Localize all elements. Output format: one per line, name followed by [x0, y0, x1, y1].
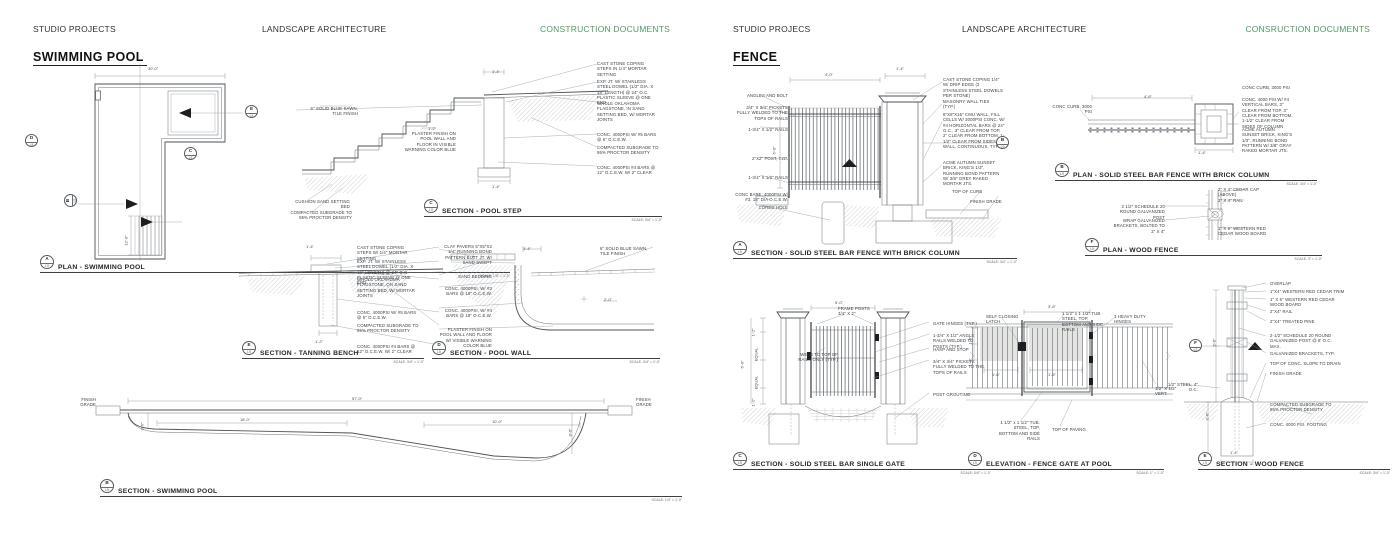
gate-hinge: [875, 334, 879, 341]
callout-label: 1" X 6" WESTERN RED CEDAR WOOD BOARD: [1270, 297, 1340, 308]
section-marker-f: FL9: [1189, 339, 1202, 352]
callout-label: CONC CURB, 3000 PSI: [1050, 104, 1092, 115]
drawing-title-text: SECTION - SOLID STEEL BAR SINGLE GATE: [751, 461, 905, 468]
callout-label: CONC. 4000PSI #4 BARS @ 12" O.C.E.W. W/ …: [597, 165, 661, 176]
footing: [1221, 402, 1253, 456]
fence-cap: [1228, 286, 1246, 290]
callout-label: 1"X4" WESTERN RED CEDAR TRIM: [1270, 289, 1358, 294]
dim-label: 1'-4": [523, 246, 531, 251]
callout-label: SELF CLOSING LATCH: [986, 314, 1022, 325]
detail-bubble: FL9: [1085, 238, 1099, 252]
callout-label: 3 HEAVY DUTY HINGES: [1114, 314, 1148, 325]
drawing-scale: SCALE: 3/4" = 1'-0": [630, 360, 661, 364]
rail: [1227, 302, 1247, 309]
detail-bubble: CL5: [424, 199, 438, 213]
dim-label: 1'-2": [750, 399, 755, 407]
drawing-title-text: ELEVATION - FENCE GATE AT POOL: [986, 461, 1112, 468]
column-cap: [879, 96, 926, 102]
marker-ref: C: [185, 148, 196, 156]
pool-outline: [95, 84, 225, 259]
sheet-ref: L9: [969, 461, 981, 466]
callout-label: CONC. 4000 PSI W/ #4 VERTICAL BARS, 3" C…: [1242, 97, 1294, 129]
callout-label: OVERLAP: [1270, 281, 1358, 286]
drawing-ref: B: [101, 480, 113, 488]
sheet-swimming-pool: STUDIO PROJECTS LANDSCAPE ARCHITECTURE C…: [0, 0, 700, 540]
callout-label: GALVANIZED BRACKETS, TYP.: [1270, 351, 1358, 356]
drawing-ref: A: [41, 256, 53, 264]
callout-label: TOP OF CURB: [952, 189, 992, 194]
callout-label: PLASTER FINISH ON POOL WALL AND FLOOR IN…: [404, 131, 456, 152]
drawing-ref: C: [425, 200, 437, 208]
callout-label: 1 1/2" x 1 1/2" TUB. STEEL, TOP, BOTTOM …: [1062, 311, 1106, 332]
marker-ref: E: [246, 106, 257, 114]
column-cap: [777, 312, 809, 318]
callout-label: 1/2" STEEL, 4" O.C.: [1166, 382, 1198, 393]
callout-label: FRAME POSTS 3/4" X 2": [838, 306, 878, 317]
callout-label: TOP OF PAVING: [1052, 427, 1086, 432]
dim-label: 2'-0": [604, 297, 612, 302]
drawing-title-text: PLAN - WOOD FENCE: [1103, 247, 1179, 254]
drawing-title-text: SECTION - SOLID STEEL BAR FENCE WITH BRI…: [751, 250, 960, 257]
drawing-scale: SCALE: 3/4" = 1'-0": [1360, 471, 1391, 475]
dim-label: 8'-0": [567, 429, 572, 437]
header-studio-projects: STUDIO PROJECS: [733, 24, 810, 34]
earth-hatch: [1186, 404, 1219, 422]
skimmer: [96, 91, 101, 100]
fence-bars: [1094, 327, 1170, 388]
header-construction-documents: CONSRUCTION DOCUMENTS: [1245, 24, 1370, 34]
section-marker-c: CL5: [184, 147, 197, 160]
callout-label: ANGLES AND BOLT: [732, 93, 788, 98]
marker-sheet: L5: [185, 156, 196, 161]
callout-label: CUSHION SAND SETTING BED: [290, 199, 350, 210]
swimming-pool-plan-drawing: [40, 64, 270, 269]
section-marker-b: BL9: [996, 136, 1009, 149]
drawing-title-steel-fence-plan: BL9 PLAN - SOLID STEEL BAR FENCE WITH BR…: [1055, 166, 1317, 181]
dim-label: 5'-6": [1211, 339, 1216, 347]
callout-label: 3/4" X 3/4" PICKETS FULLY WELDED TO THE …: [732, 105, 788, 121]
dim-label: 1'-4": [896, 66, 904, 71]
detail-bubble: BL5: [100, 479, 114, 493]
paving: [807, 408, 879, 422]
dim-label: 6'-0": [739, 361, 744, 369]
drawing-ref: F: [1086, 239, 1098, 247]
drawing-ref: A: [734, 242, 746, 250]
dim-label: 10'-0": [492, 419, 502, 424]
dim-label: 1'-4": [492, 184, 500, 189]
gate-section-drawing: [733, 296, 958, 466]
hinge: [1089, 378, 1093, 385]
dim-label: 1'-6": [992, 372, 1000, 377]
fence-pickets: [790, 108, 879, 190]
callout-label: 1 1/2" x 1 1/2" TUB. STEEL, TOP, BOTTOM …: [994, 420, 1040, 441]
callout-label: CONC. 4000 PSI. FOOTING: [1270, 422, 1358, 427]
picket-ticks: [1088, 128, 1195, 133]
detail-bubble: BL9: [1055, 163, 1069, 177]
drawing-ref: B: [1056, 164, 1068, 172]
brick-column: [886, 318, 900, 404]
dim-label: 1'-4": [1198, 150, 1206, 155]
dim-label: EQUAL: [753, 348, 758, 362]
drawing-scale: SCALE: 3/4" = 1'-0": [394, 360, 425, 364]
callout-label: WHOLE OKLAHOMA FLAGSTONE, IN SAND SETTIN…: [597, 101, 659, 122]
callout-label: COMPACTED SUBGRADE TO 95% PROCTOR DENSIT…: [597, 145, 659, 156]
steel-fence-plan-drawing: [1080, 90, 1240, 172]
sheet-ref: L5: [101, 488, 113, 493]
dim-pool-steps: 12'-0": [124, 235, 129, 245]
callout-label: CAST STONE COPING STEPS IN 1/4" MORTAR S…: [597, 61, 659, 77]
callout-label: 2-1/2" SCHEDULE 20 ROUND GALVANIZED POST…: [1270, 333, 1336, 349]
fence-bars: [970, 327, 1020, 388]
dim-label: 3'-6": [139, 423, 144, 431]
drawing-title-gate-elevation: DL9 ELEVATION - FENCE GATE AT POOL SCALE…: [968, 455, 1164, 470]
dim-label: 1'-2": [750, 329, 755, 337]
drawing-ref: D: [433, 342, 445, 350]
drawing-title-text: SECTION - TANNING BENCH: [260, 350, 359, 357]
pool-wall-footing: [484, 98, 504, 168]
callout-label: CLAY PAVERS 5"X5"X2 1/4" RUNNING BOND PA…: [436, 244, 492, 265]
callout-label: 6" SOLID BLUE SAWN, TILE FINISH: [600, 246, 658, 257]
sheet-fence: STUDIO PROJECS LANDSCAPE ARCHITECTURE CO…: [700, 0, 1400, 540]
finish-grade-right: [608, 406, 632, 415]
dim-label: 4'-6": [1144, 94, 1152, 99]
section-marker-d: DL5: [25, 134, 38, 147]
earth-hatch: [842, 205, 880, 228]
sheet-ref: L5: [425, 208, 437, 213]
callout-label: TOP OF CONC. SLOPE TO DRAIN: [1270, 361, 1358, 366]
callout-label: 6" SOLID BLUE SAWN, TILE FINISH: [300, 106, 358, 117]
callout-label: 2" X 4" CEDAR CAP (ABOVE): [1218, 187, 1274, 198]
callout-label: WHOLE OKLAHOMA FLAGSTONE, ON SAND SETTIN…: [357, 277, 419, 298]
dim-label: 1'-4": [306, 244, 314, 249]
callout-label: COMPACTED SUBGRADE TO 95% PROCTOR DENSIT…: [1270, 402, 1340, 413]
earth-hatch: [304, 174, 370, 194]
drawing-title-text: SECTION - POOL WALL: [450, 350, 531, 357]
marker-ref: B: [997, 137, 1008, 145]
sheet-ref: L9: [1086, 247, 1098, 252]
marker-sheet: L5: [246, 114, 257, 119]
drawing-ref: E: [243, 342, 255, 350]
callout-label: MASONRY WALL TIES (TYP.): [943, 99, 997, 110]
latch: [1018, 342, 1026, 351]
callout-label: ACME AUTUMN SUNSET BRICK, KING'S 1/3", R…: [1242, 127, 1294, 154]
finish-grade-label: FINISH GRADE: [72, 397, 96, 408]
marker-sheet: L5: [73, 195, 78, 206]
hinge: [1089, 356, 1093, 363]
section-arrow: [1248, 342, 1262, 350]
earth-hatch: [909, 408, 949, 428]
detail-bubble: DL5: [432, 341, 446, 355]
dim-label: 6'-0": [771, 147, 776, 155]
drawing-title-pool-step: CL5 SECTION - POOL STEP SCALE: 3/4" = 1'…: [424, 202, 662, 217]
drawing-scale: SCALE: 3" = 1'-0": [1294, 257, 1322, 261]
header-construction-documents: CONSTRUCTION DOCUMENTS: [540, 24, 670, 34]
dim-label: 18'-0": [240, 417, 250, 422]
dim-label: 1'-4": [492, 69, 500, 74]
drawing-scale: SCALE: 3/4" = 1'-0": [632, 218, 663, 222]
callout-label: WRAP GALVANIZED BRACKETS, BOLTED TO 2" X…: [1113, 218, 1165, 234]
header-landscape-architecture: LANDSCAPE ARCHITECTURE: [962, 24, 1086, 34]
drawing-ref: D: [969, 453, 981, 461]
callout-label: CONC. 4000PSI, W/ #3 BARS @ 18" O.C.E.W.: [436, 286, 492, 297]
callout-label: CONC. 4000PSI, W/ #4 BARS @ 18" O.C.E.W.: [436, 308, 492, 319]
drawing-ref: E: [1199, 453, 1211, 461]
dim-label: EQUAL: [753, 376, 758, 390]
callout-label: FINISH GRADE: [970, 199, 1010, 204]
callout-label: 1-3/4" X 1/2" RAILS: [732, 175, 788, 180]
gate-hinge: [875, 372, 879, 379]
drawing-title-steel-fence-section: AL9 SECTION - SOLID STEEL BAR FENCE WITH…: [733, 244, 1017, 259]
sheet-ref: L9: [1199, 461, 1211, 466]
drawing-scale: SCALE: 3/4" = 1'-0": [1287, 182, 1318, 186]
marker-sheet: L9: [1190, 348, 1201, 353]
drawing-title-text: SECTION - POOL STEP: [442, 208, 522, 215]
drawing-scale: SCALE: 1" = 1'-0": [1136, 471, 1164, 475]
drawing-scale: SCALE: 3/4" = 1'-0": [961, 471, 992, 475]
marker-sheet: L9: [997, 145, 1008, 150]
callout-label: 2"X2" POST, TYP.: [732, 156, 788, 161]
dim-label: 5'-0": [835, 300, 843, 305]
drawing-title-pool-wall: DL5 SECTION - POOL WALL SCALE: 3/4" = 1'…: [432, 344, 660, 359]
callout-label: CAST STONE COPING 1/4" W/ DRIP EDGE (2 S…: [943, 77, 1003, 98]
detail-bubble: AL5: [40, 255, 54, 269]
section-marker-e: EL5: [245, 105, 258, 118]
curb: [926, 210, 988, 218]
earth-hatch: [741, 408, 777, 426]
sheet-ref: L5: [41, 264, 53, 269]
dim-label: 1'-2": [428, 126, 436, 131]
dim-label: 4'-0": [825, 72, 833, 77]
callout-label: COMPACTED SUBGRADE TO 95% PROCTOR DENSIT…: [290, 210, 352, 221]
callout-label: 2" X 4" RAIL: [1218, 198, 1274, 203]
sheet-ref: L9: [734, 250, 746, 255]
post-footing: [822, 202, 844, 244]
section-marker-b: BL5: [64, 194, 77, 207]
sheet-ref: L5: [433, 350, 445, 355]
marker-sheet: L5: [26, 143, 37, 148]
pool-shell: [128, 413, 586, 458]
drawing-title-wood-fence-section: EL9 SECTION - WOOD FENCE SCALE: 3/4" = 1…: [1198, 455, 1390, 470]
drawing-scale: SCALE: 1/4" = 1'-0": [652, 498, 683, 502]
drawing-title-text: PLAN - SWIMMING POOL: [58, 264, 145, 271]
finish-grade-label: FINISH GRADE: [636, 397, 660, 408]
callout-label: WELD TO TOP OF RAILS ONLY (TYP.): [798, 352, 838, 363]
callout-label: SAND BEDDING: [436, 274, 492, 279]
page-title: FENCE: [733, 50, 780, 66]
callout-label: 1-3/4" X 1/2" RAILS: [732, 127, 788, 132]
detail-bubble: EL5: [242, 341, 256, 355]
section-arrow-e: [179, 108, 191, 118]
dim-label: 1'-2": [967, 359, 972, 367]
callout-label: ACME AUTUMN SUNSET BRICK, KING'S 1/3", R…: [943, 160, 1003, 187]
callout-label: 1" X 6" WESTERN RED CEDAR WOOD BOARD: [1218, 226, 1274, 237]
dim-label: 2'-6": [1204, 413, 1209, 421]
bench-pier: [319, 272, 337, 326]
document-canvas: STUDIO PROJECTS LANDSCAPE ARCHITECTURE C…: [0, 0, 1400, 540]
marker-ref: B: [65, 195, 73, 206]
drawing-scale: SCALE: 3/4" = 1'-0": [987, 260, 1018, 264]
callout-label: CORED HOLE: [732, 205, 788, 210]
dim-label: 3'-6": [1048, 304, 1056, 309]
sheet-ref: L5: [243, 350, 255, 355]
callout-label: CONC BASE: 4000PSI W/ #3, 18" DIA O.C.E.…: [732, 192, 788, 203]
pool-wall-profile: [515, 265, 654, 330]
callout-label: CONC. 4000PSI W/ #5 BARS @ 6" O.C.E.W.: [597, 132, 657, 143]
rail: [1227, 374, 1247, 381]
finish-grade-left: [96, 406, 120, 415]
drawing-ref: C: [734, 453, 746, 461]
hinge: [1089, 332, 1093, 339]
detail-bubble: DL9: [968, 452, 982, 466]
callout-label: CONC CURB, 3000 PSI: [1242, 85, 1294, 90]
earth-hatch: [247, 276, 307, 295]
gate-bars: [1030, 328, 1084, 386]
detail-bubble: CL9: [733, 452, 747, 466]
header-studio-projects: STUDIO PROJECTS: [33, 24, 116, 34]
drawing-title-tanning-bench: EL5 SECTION - TANNING BENCH SCALE: 3/4" …: [242, 344, 424, 359]
header-landscape-architecture: LANDSCAPE ARCHITECTURE: [262, 24, 386, 34]
drawing-title-text: SECTION - SWIMMING POOL: [118, 488, 217, 495]
callout-label: COMPACTED SUBGRADE TO 95% PROCTOR DENSIT…: [357, 323, 419, 334]
marker-ref: D: [26, 135, 37, 143]
column-cap: [877, 312, 909, 318]
callout-label: 2"X4" TREATED PINE: [1270, 319, 1358, 324]
sheet-ref: L9: [1056, 172, 1068, 177]
drawing-title-text: PLAN - SOLID STEEL BAR FENCE WITH BRICK …: [1073, 172, 1269, 179]
callout-label: CONC. 4000PSI W/ #5 BARS @ 6" O.C.E.W.: [357, 310, 417, 321]
detail-bubble: AL9: [733, 241, 747, 255]
dim-pool-width: 30'-0": [148, 66, 158, 71]
drawing-title-text: SECTION - WOOD FENCE: [1216, 461, 1304, 468]
sheet-ref: L9: [734, 461, 746, 466]
drawing-title-pool-section: BL5 SECTION - SWIMMING POOL SCALE: 1/4" …: [100, 482, 682, 497]
section-arrow-d: [126, 199, 138, 209]
earth-hatch: [508, 95, 600, 122]
drawing-title-gate-section: CL9 SECTION - SOLID STEEL BAR SINGLE GAT…: [733, 455, 991, 470]
pool-step-section-drawing: [292, 58, 622, 203]
drawing-title-wood-fence-plan: FL9 PLAN - WOOD FENCE SCALE: 3" = 1'-0": [1085, 241, 1322, 256]
detail-bubble: EL9: [1198, 452, 1212, 466]
dim-label: 1'-6": [967, 337, 972, 345]
callout-label: FINISH GRADE: [1270, 371, 1358, 376]
marker-ref: F: [1190, 340, 1201, 348]
callout-label: 2"X4" RAIL: [1270, 309, 1358, 314]
dim-label: 1'-6": [1048, 372, 1056, 377]
pool-long-section-drawing: [62, 394, 682, 484]
brick-column: [887, 102, 918, 205]
dim-label: 57'-0": [352, 396, 362, 401]
